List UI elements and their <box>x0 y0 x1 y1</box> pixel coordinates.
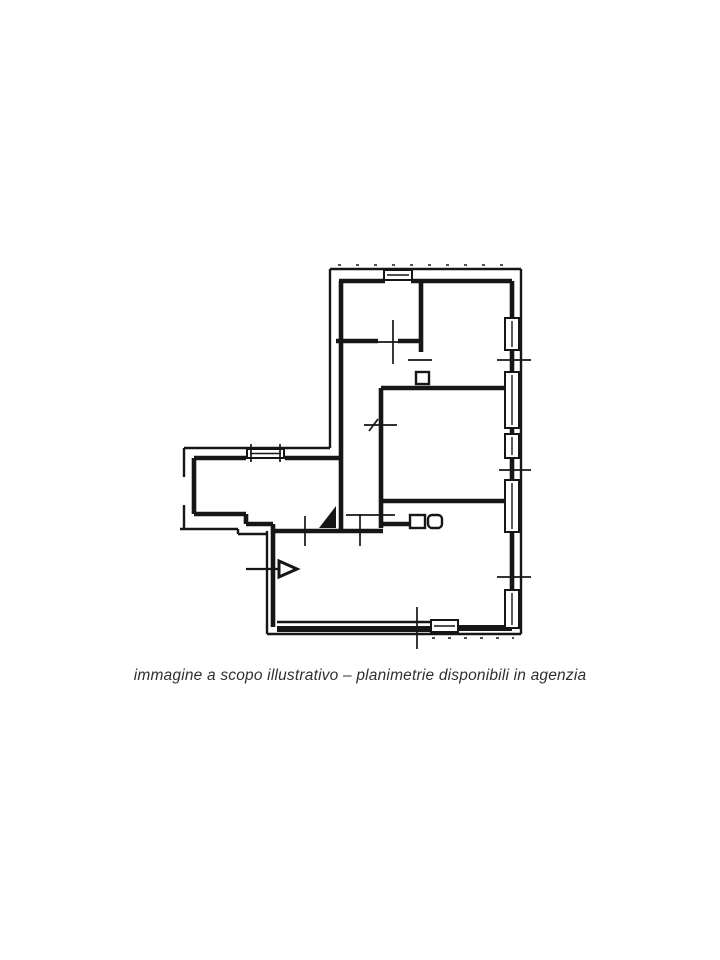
caption-text: immagine a scopo illustrativo – planimet… <box>0 666 720 686</box>
floor-plan-drawing <box>0 0 720 960</box>
page: immagine a scopo illustrativo – planimet… <box>0 0 720 960</box>
floor-plan-figure <box>0 0 720 960</box>
